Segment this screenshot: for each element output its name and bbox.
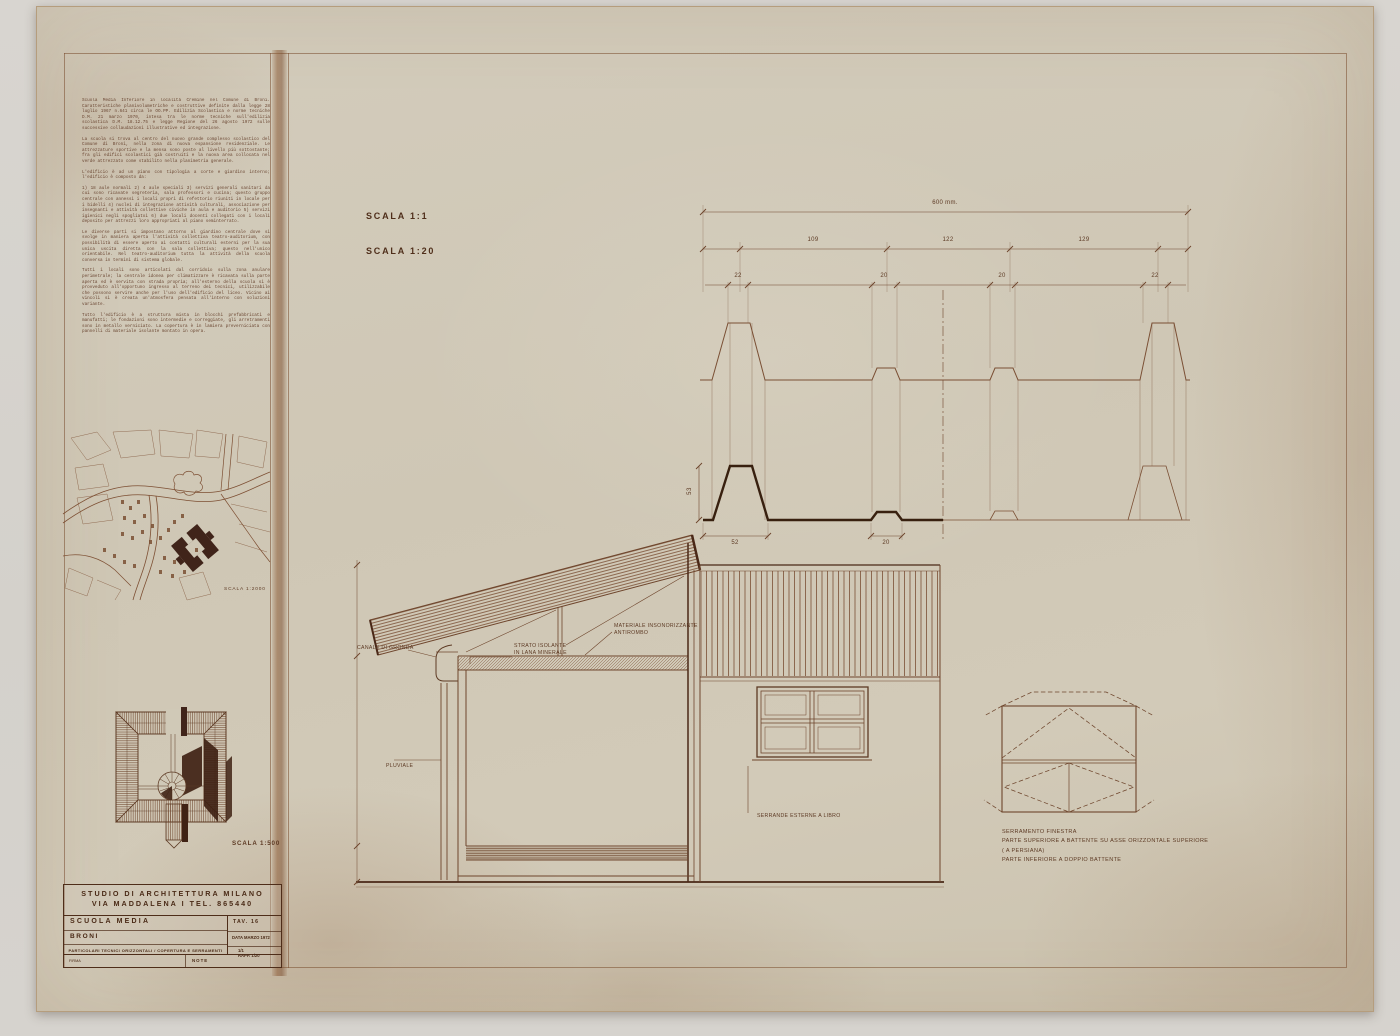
gutter-label: CANALE DI GRONDA xyxy=(357,645,414,651)
sheet-scale-ratio: 1/1 RAPP. 1/20 xyxy=(228,947,281,958)
soundproofing-label-line1: MATERIALE INSONORIZZANTE xyxy=(614,623,698,629)
window-note-line: SERRAMENTO FINESTRA xyxy=(1002,828,1208,837)
dim-segment: 109 xyxy=(808,237,819,243)
dim-rib-width: 20 xyxy=(880,273,887,279)
dim-rib-width: 22 xyxy=(734,273,741,279)
studio-header: STUDIO DI ARCHITETTURA MILANO VIA MADDAL… xyxy=(64,885,281,916)
drawing-title: PARTICOLARI TECNICI ORIZZONTALI / COPERT… xyxy=(64,945,227,953)
technical-drawings xyxy=(0,0,1400,1036)
signature-cell: FIRMA xyxy=(64,955,186,968)
scale-label-axonometric: SCALA 1:500 xyxy=(232,840,280,847)
window-note: SERRAMENTO FINESTRA PARTE SUPERIORE A BA… xyxy=(1002,828,1208,865)
studio-name: STUDIO DI ARCHITETTURA MILANO xyxy=(64,889,281,899)
dim-rib-width: 22 xyxy=(1151,273,1158,279)
window-note-line: PARTE INFERIORE A DOPPIO BATTENTE xyxy=(1002,856,1208,865)
dim-segment: 129 xyxy=(1079,237,1090,243)
notes-cell: NOTE xyxy=(186,955,208,968)
scale-label-profile: SCALA 1:1 xyxy=(366,211,428,221)
window-operation-diagram xyxy=(984,692,1154,812)
scale-label-section: SCALA 1:20 xyxy=(366,246,435,256)
dim-rib-width: 20 xyxy=(998,273,1005,279)
title-block: STUDIO DI ARCHITETTURA MILANO VIA MADDAL… xyxy=(63,884,282,968)
project-location: BRONI xyxy=(64,931,227,945)
downpipe-label: PLUVIALE xyxy=(386,763,413,769)
dim-rib-base: 52 xyxy=(731,540,738,546)
scanned-architectural-sheet: Scuola Media Inferiore in località Cremi… xyxy=(0,0,1400,1036)
dim-segment: 122 xyxy=(943,237,954,243)
elevation-drawing xyxy=(700,565,940,882)
dim-rib-height: 53 xyxy=(687,487,693,495)
soundproofing-label-line2: ANTIROMBO xyxy=(614,630,648,636)
site-plan-drawing xyxy=(63,430,270,600)
axonometric-drawing xyxy=(116,707,232,848)
project-name: SCUOLA MEDIA xyxy=(64,916,227,931)
window-note-line: PARTE SUPERIORE A BATTENTE SU ASSE ORIZZ… xyxy=(1002,837,1208,846)
studio-address: VIA MADDALENA I TEL. 865440 xyxy=(64,899,281,909)
ratio-line2: RAPP. 1/20 xyxy=(238,953,281,958)
window-note-line: ( A PERSIANA) xyxy=(1002,847,1208,856)
roof-sheet-profile-drawing xyxy=(696,205,1191,540)
scale-label-site-plan: SCALA 1:2000 xyxy=(224,587,266,592)
shutters-label: SERRANDE ESTERNE A LIBRO xyxy=(757,813,841,819)
insulation-label-line1: STRATO ISOLANTE xyxy=(514,643,566,649)
insulation-label-line2: IN LANA MINERALE xyxy=(514,650,567,656)
dim-total-width: 600 mm. xyxy=(932,200,957,206)
dim-rib-base: 20 xyxy=(882,540,889,546)
sheet-number: TAV. 16 xyxy=(228,916,281,932)
sheet-date: DATA MARZO 1972 xyxy=(228,932,281,947)
